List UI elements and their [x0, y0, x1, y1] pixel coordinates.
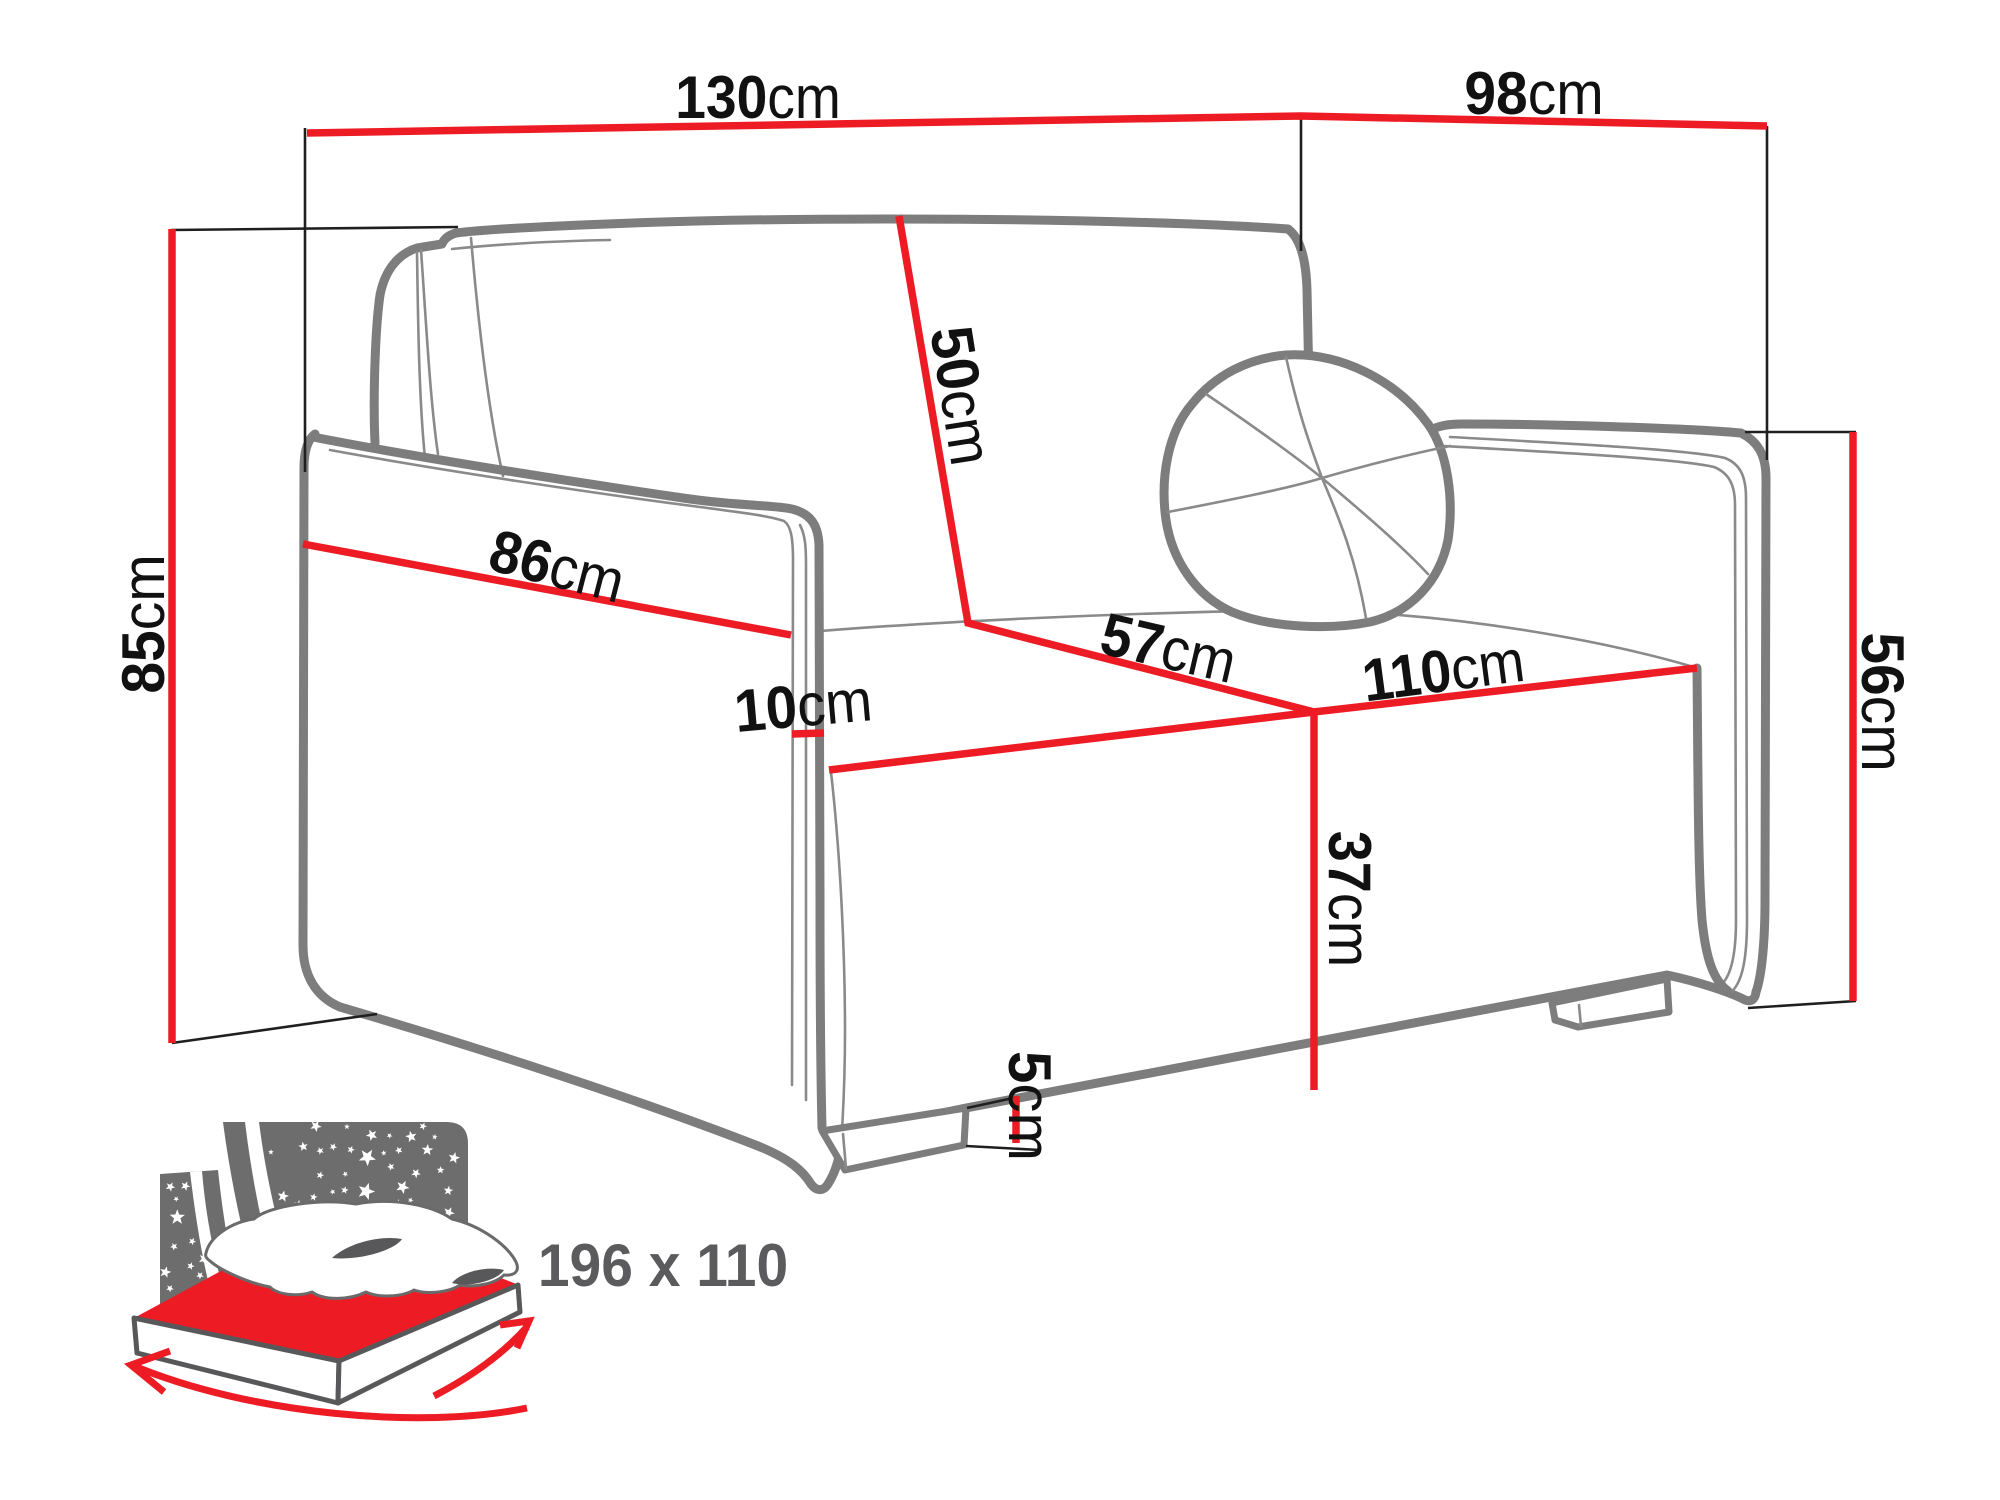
svg-text:5cm: 5cm	[996, 1051, 1064, 1161]
svg-text:85cm: 85cm	[111, 554, 178, 693]
svg-text:10cm: 10cm	[732, 667, 875, 746]
svg-text:37cm: 37cm	[1316, 831, 1382, 967]
svg-text:56cm: 56cm	[1849, 632, 1916, 771]
svg-text:196 x 110: 196 x 110	[538, 1233, 788, 1300]
svg-text:130cm: 130cm	[675, 65, 841, 132]
svg-text:98cm: 98cm	[1464, 61, 1603, 128]
